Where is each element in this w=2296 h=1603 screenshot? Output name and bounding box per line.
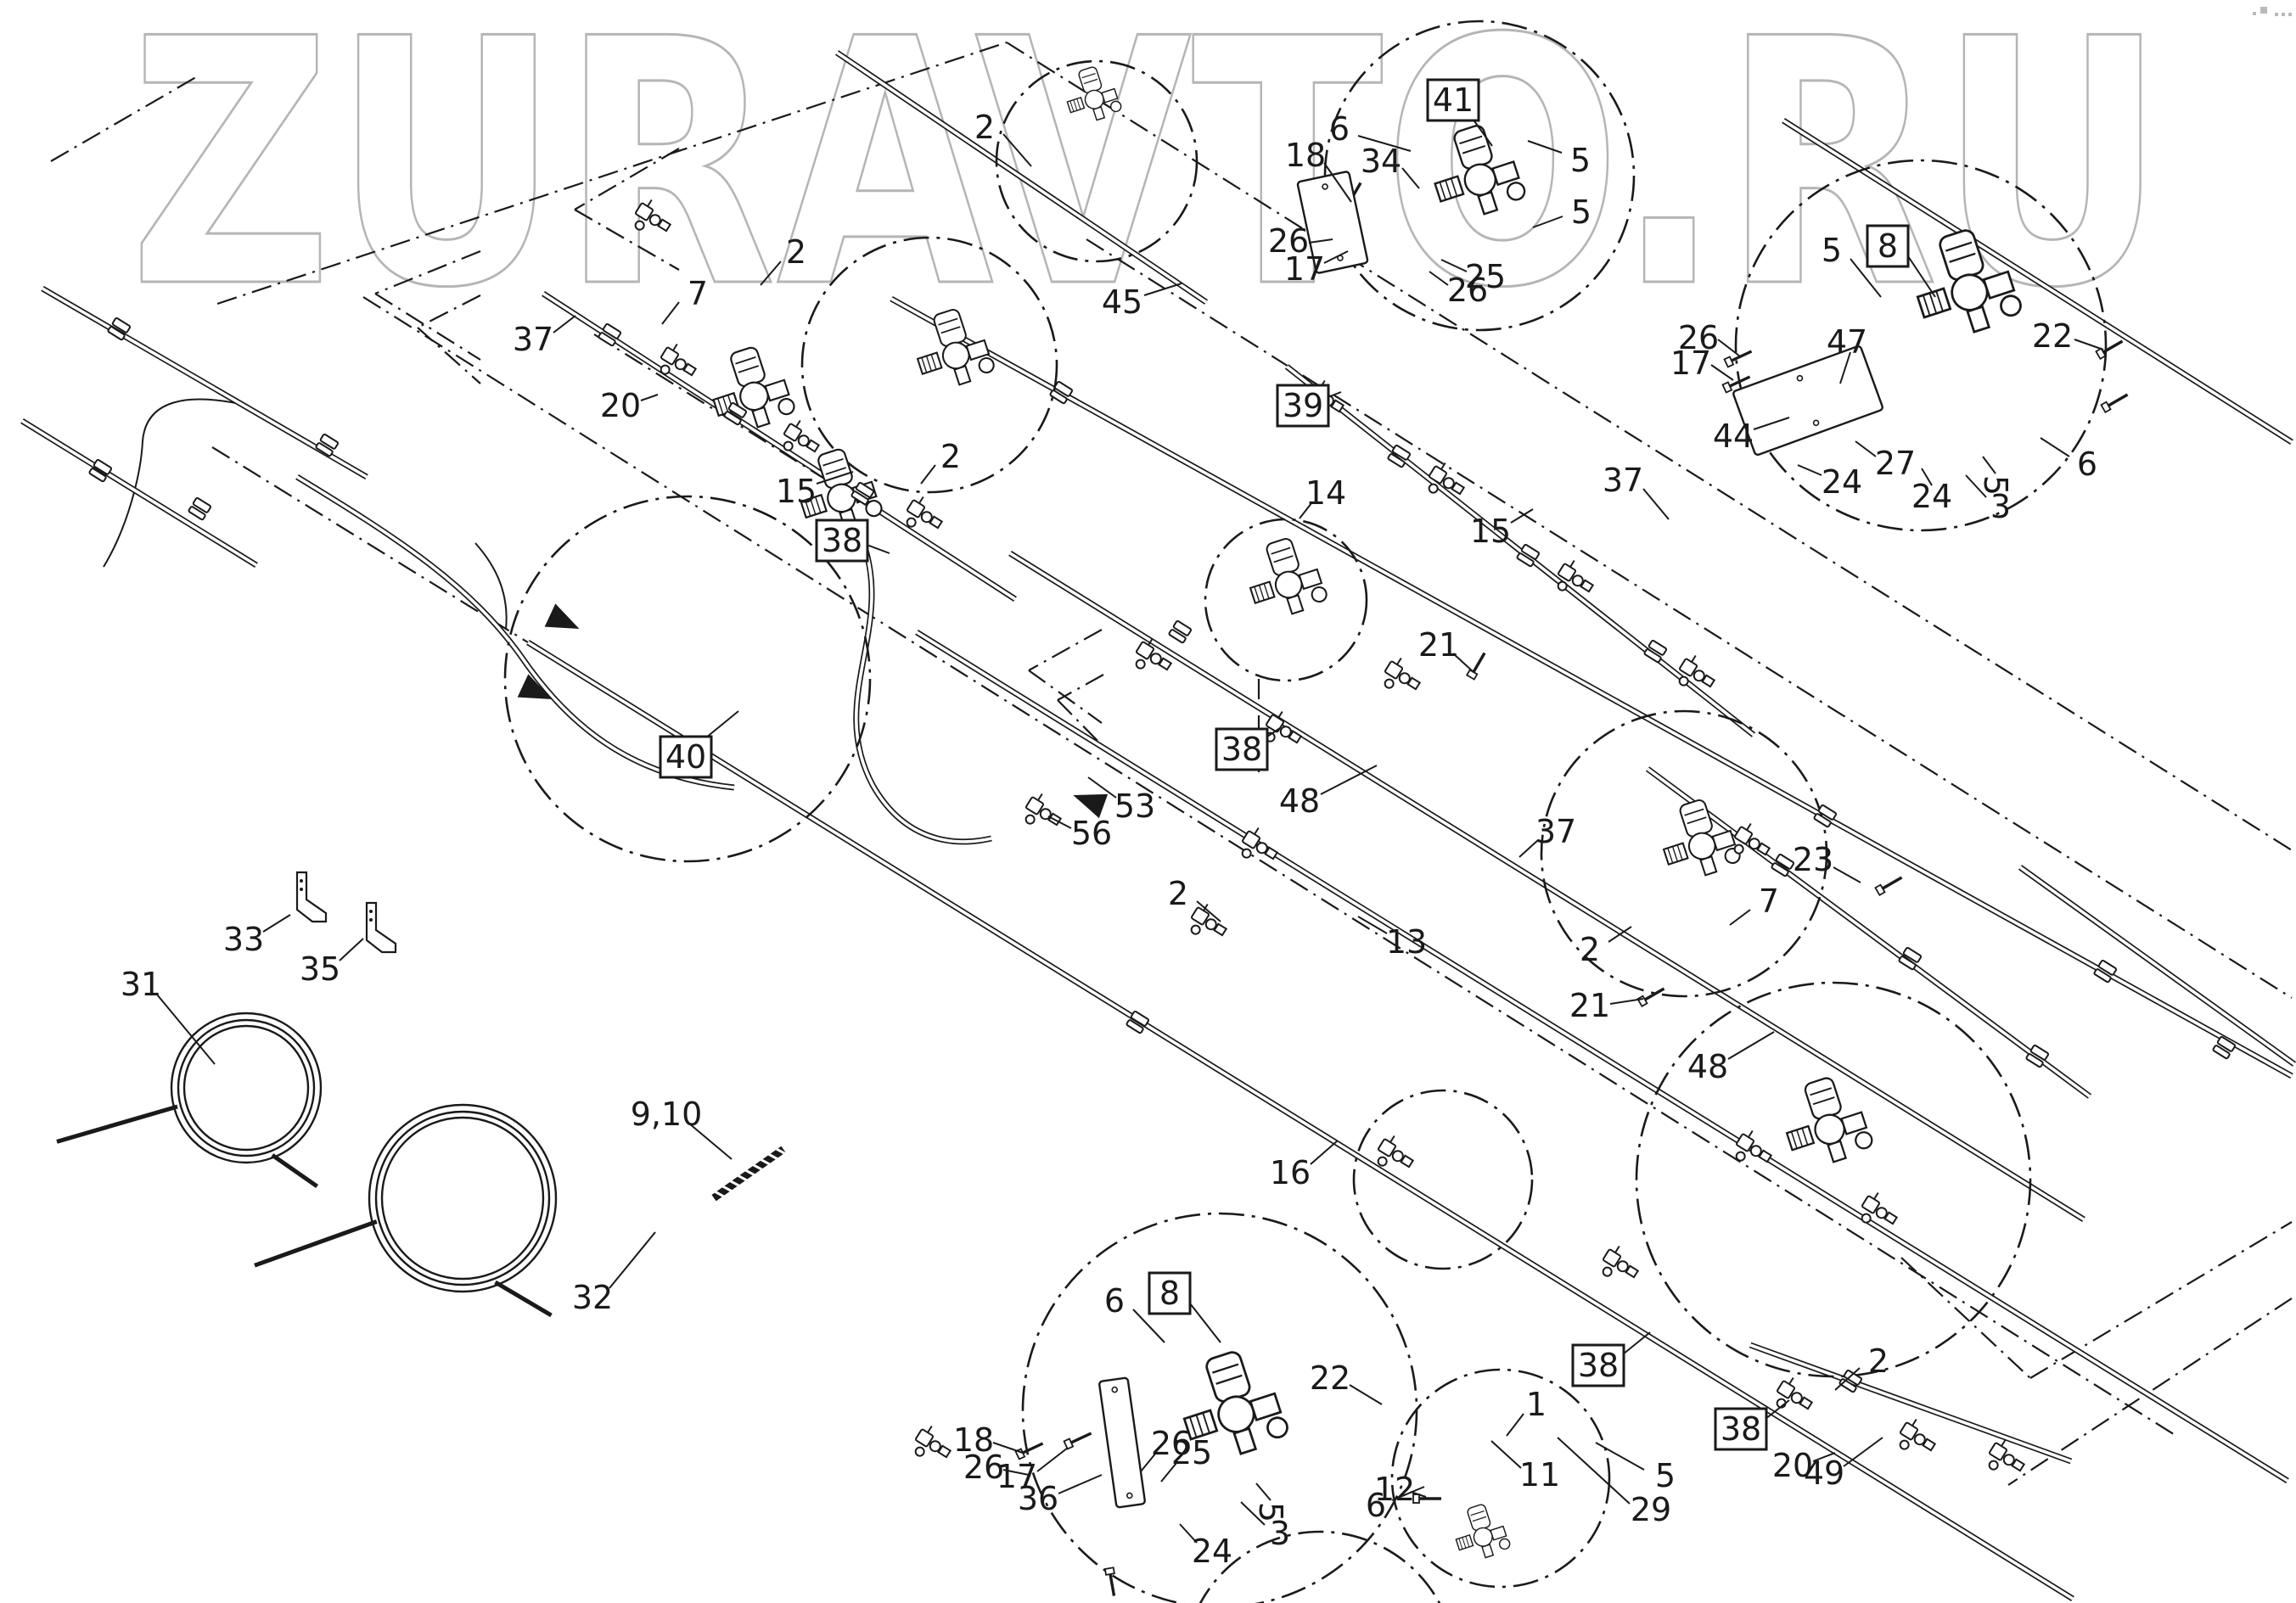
nozzle-tip-icon (1384, 678, 1395, 690)
part-label: 2 (1868, 1342, 1889, 1380)
valve-port-icon (1490, 1527, 1507, 1540)
part-label: 53 (1114, 787, 1155, 825)
part-label-boxed: 40 (660, 737, 711, 777)
leader-line (1511, 509, 1533, 523)
part-label: 2 (1168, 875, 1188, 912)
part-label: 48 (1279, 782, 1320, 820)
bolt-shaft-icon (1071, 1433, 1092, 1443)
nozzle-cluster (777, 417, 825, 462)
part-number: 13 (1386, 923, 1427, 961)
part-label: 2 (1580, 931, 1600, 968)
part-label: 5 (1252, 1502, 1289, 1522)
coil-ring-icon (171, 1013, 321, 1163)
part-label: 1 (1526, 1386, 1547, 1423)
part-label: 15 (776, 473, 817, 510)
section-dashdot-line (1901, 1258, 2030, 1378)
part-number: 18 (1285, 137, 1326, 174)
leader-line (1037, 1448, 1068, 1471)
holder-bracket (367, 903, 396, 952)
leader-line (921, 465, 935, 484)
leader-line (609, 1232, 655, 1288)
spiral-wrap (711, 1145, 787, 1202)
callout-circle (1354, 1090, 1532, 1269)
part-label: 17 (1284, 250, 1325, 288)
part-label-boxed: 39 (1277, 385, 1328, 426)
part-number: 47 (1827, 323, 1867, 361)
part-label: 45 (1102, 283, 1142, 321)
coil-ring-icon (376, 1112, 549, 1285)
valve-port-icon (1250, 582, 1274, 603)
part-label: 18 (1285, 137, 1326, 174)
leader-line (1190, 1303, 1221, 1342)
valve-assembly (1448, 1499, 1512, 1564)
valve-port-icon (954, 366, 970, 384)
valve-port-icon (1482, 1544, 1493, 1558)
part-number: 41 (1433, 81, 1474, 119)
part-number: 22 (1310, 1359, 1350, 1397)
corner-mark (2253, 12, 2256, 15)
bolt-head-icon (1875, 885, 1884, 895)
part-label-boxed: 38 (1715, 1409, 1766, 1449)
part-number: 6 (1329, 110, 1350, 148)
coil-tail-icon (272, 1155, 317, 1186)
corner-mark (2260, 7, 2267, 14)
nozzle-cluster (1019, 790, 1067, 836)
part-label: 24 (1911, 478, 1952, 515)
valve-port-icon (1664, 844, 1687, 865)
leader-line (1711, 365, 1733, 380)
part-label: 29 (1631, 1491, 1671, 1528)
nozzle-tip-icon (1024, 814, 1036, 826)
nozzle-tip-icon (1988, 1460, 2000, 1471)
part-number: 24 (1911, 478, 1952, 515)
valve-port-icon (1713, 831, 1735, 850)
part-number: 8 (1878, 227, 1898, 265)
coil-ring-icon (382, 1118, 543, 1279)
part-label: 11 (1519, 1456, 1560, 1494)
part-label-boxed: 38 (1573, 1345, 1624, 1386)
leader-line (1596, 1443, 1644, 1470)
part-label: 56 (1071, 815, 1112, 852)
part-number: 20 (600, 387, 641, 424)
pipe-clamp (1169, 620, 1192, 643)
part-number: 31 (121, 966, 161, 1003)
exploded-parts-diagram: ZURAVTO.RU641183452617525262452377201538… (0, 0, 2296, 1603)
nozzle-tip-icon (1135, 659, 1147, 670)
part-label-boxed: 38 (1216, 729, 1267, 770)
bolt-shaft-icon (2108, 395, 2128, 406)
part-label: 21 (1418, 626, 1459, 664)
part-number: 37 (513, 321, 553, 358)
part-number: 38 (1221, 731, 1262, 768)
leader-line (1844, 1438, 1883, 1466)
part-label: 37 (513, 321, 553, 358)
clamp-ring-icon (777, 397, 796, 417)
part-label: 5 (1571, 193, 1591, 231)
pipe-clamp (1839, 1370, 1862, 1393)
boom-pipe-core (2020, 867, 2294, 1064)
valve-motor-icon (1467, 1504, 1491, 1532)
part-number: 22 (2032, 317, 2073, 355)
part-number: 37 (1603, 462, 1643, 499)
part-number: 2 (1580, 931, 1600, 968)
nozzle-cluster (1894, 1415, 1941, 1461)
part-label: 27 (1875, 445, 1916, 482)
part-number: 56 (1071, 815, 1112, 852)
part-label: 37 (1603, 462, 1643, 499)
holder-bracket (297, 872, 326, 922)
part-label-boxed: 8 (1149, 1273, 1190, 1314)
valve-assembly (1239, 532, 1329, 624)
part-label: 23 (1793, 841, 1833, 878)
part-label-boxed: 8 (1867, 226, 1908, 266)
hose (856, 545, 991, 842)
part-number: 49 (1804, 1454, 1844, 1492)
part-number: 48 (1279, 782, 1320, 820)
part-label-boxed: 38 (817, 520, 867, 561)
part-label: 6 (1104, 1282, 1125, 1320)
valve-port-icon (1300, 569, 1322, 589)
leader-line (1833, 867, 1861, 883)
valve-motor-icon (817, 448, 854, 490)
part-label: 32 (572, 1279, 613, 1316)
hose-coil (57, 1013, 321, 1186)
part-label: 17 (1670, 345, 1711, 382)
valve-motor-icon (1266, 537, 1300, 577)
nozzle-cluster (1185, 900, 1232, 946)
part-number: 26 (1447, 272, 1488, 309)
section-dashdot-line (1058, 675, 1103, 700)
part-label: 5 (1570, 142, 1591, 179)
part-number: 6 (2077, 446, 2097, 483)
part-number: 33 (223, 921, 264, 958)
valve-port-icon (1700, 856, 1716, 875)
bolt-shaft-icon (1474, 653, 1485, 672)
leader-line (1643, 489, 1669, 519)
leader-line (1798, 465, 1822, 475)
part-label: 9,10 (631, 1096, 703, 1133)
part-number: 14 (1305, 474, 1346, 512)
valve-port-icon (1287, 595, 1303, 614)
part-number: 25 (1171, 1434, 1212, 1471)
leader-line (1321, 765, 1377, 794)
part-label: 7 (688, 275, 708, 312)
part-number: 38 (822, 522, 862, 559)
part-number: 37 (1535, 813, 1576, 850)
valve-port-icon (1842, 1113, 1867, 1135)
corner-mark (2275, 13, 2278, 16)
part-label: 31 (121, 966, 161, 1003)
part-number: 38 (1721, 1410, 1761, 1448)
bolt (1105, 1567, 1119, 1596)
leader-line (1350, 1385, 1382, 1404)
part-number: 35 (300, 950, 340, 988)
bolt (1467, 651, 1488, 680)
part-number: 24 (1192, 1533, 1232, 1570)
part-label: 22 (2032, 317, 2073, 355)
valve-port-icon (1787, 1126, 1814, 1150)
part-label: 21 (1569, 987, 1610, 1024)
corner-mark (2282, 13, 2285, 16)
part-label: 37 (1535, 813, 1576, 850)
part-number: 5 (1977, 475, 2014, 496)
leader-line (1311, 1141, 1338, 1164)
leader-line (1728, 1032, 1774, 1059)
part-number: 17 (1284, 250, 1325, 288)
leader-line (1558, 1438, 1630, 1504)
watermark-text: ZURAVTO.RU (129, 0, 2166, 362)
part-label: 47 (1827, 323, 1867, 361)
leader-line (1507, 1414, 1524, 1436)
bolt-shaft-icon (1883, 877, 1902, 888)
part-number: 44 (1713, 418, 1754, 455)
nozzle-tip-icon (1899, 1439, 1911, 1451)
leader-line (2041, 438, 2069, 457)
part-number: 38 (1578, 1347, 1619, 1384)
part-label: 14 (1305, 474, 1346, 512)
part-number: 16 (1270, 1154, 1311, 1191)
part-number: 11 (1519, 1456, 1560, 1494)
leader-line (641, 395, 658, 401)
valve-port-icon (753, 407, 770, 427)
flow-arrow-icon (545, 603, 585, 640)
leader-line (340, 939, 363, 961)
leader-line (1058, 1475, 1102, 1494)
part-number: 53 (1114, 787, 1155, 825)
part-number: 5 (1655, 1457, 1676, 1494)
part-label: 13 (1386, 923, 1427, 961)
part-number: 29 (1631, 1491, 1671, 1528)
nozzle-tip-icon (1602, 1266, 1614, 1278)
valve-motor-icon (1679, 799, 1714, 838)
part-number: 12 (1374, 1471, 1415, 1508)
part-number: 2 (1868, 1342, 1889, 1380)
part-label: 20 (600, 387, 641, 424)
diagram-stage: ZURAVTO.RU641183452617525262452377201538… (0, 0, 2296, 1603)
part-number: 8 (1159, 1275, 1180, 1312)
part-label: 33 (223, 921, 264, 958)
clamp-ring-icon (1265, 1415, 1289, 1440)
coil-ring-icon (369, 1105, 556, 1292)
part-label: 25 (1171, 1434, 1212, 1471)
coil-tail-icon (57, 1107, 177, 1141)
corner-mark (2288, 13, 2292, 16)
plate-shape-icon (1099, 1377, 1146, 1507)
nozzle-tip-icon (914, 1446, 926, 1458)
boom-pipe-core (22, 421, 256, 565)
valve-port-icon (766, 380, 789, 401)
bolt (1016, 1439, 1045, 1459)
pipe-clamp (316, 434, 339, 457)
clamp-ring-icon (1854, 1130, 1874, 1151)
valve-assembly (1653, 793, 1743, 885)
part-number: 5 (1252, 1502, 1289, 1522)
leader-line (263, 915, 290, 932)
bolt-shaft-icon (1645, 989, 1664, 1000)
valve-motor-icon (1804, 1076, 1843, 1120)
part-label: 15 (1470, 513, 1511, 550)
part-label: 5 (1822, 232, 1842, 269)
bolt (1875, 874, 1904, 895)
nozzle-cluster (909, 1422, 957, 1468)
part-number: 32 (572, 1279, 613, 1316)
part-number: 2 (1168, 875, 1188, 912)
part-label: 16 (1270, 1154, 1311, 1191)
nozzle-cluster (1730, 1127, 1777, 1173)
leader-line (1855, 441, 1876, 457)
part-label-boxed: 41 (1428, 80, 1479, 121)
leader-line (157, 995, 215, 1064)
part-label: 12 (1374, 1471, 1415, 1508)
pipe-clamp (188, 497, 211, 520)
valve-port-icon (1250, 1393, 1281, 1420)
hose-coil (255, 1105, 556, 1315)
part-label: 5 (1977, 475, 2014, 496)
part-label: 7 (1759, 883, 1779, 920)
part-number: 34 (1361, 143, 1401, 180)
bolt-head-icon (1637, 996, 1647, 1006)
callout-circle (1392, 1370, 1609, 1587)
part-label: 6 (1329, 110, 1350, 148)
valve-port-icon (1234, 1428, 1255, 1454)
part-number: 7 (1759, 883, 1779, 920)
part-number: 39 (1283, 387, 1323, 424)
mounting-plate (1099, 1377, 1146, 1507)
part-label: 48 (1687, 1048, 1728, 1085)
part-number: 5 (1571, 193, 1591, 231)
part-label: 6 (2077, 446, 2097, 483)
part-number: 2 (940, 438, 961, 475)
part-number: 40 (665, 738, 706, 776)
part-number: 17 (1670, 345, 1711, 382)
part-number: 5 (1822, 232, 1842, 269)
part-label: 26 (1447, 272, 1488, 309)
bolt-head-icon (1105, 1567, 1114, 1575)
bolt (1064, 1429, 1093, 1449)
part-number: 21 (1569, 987, 1610, 1024)
leader-line (1256, 1483, 1271, 1500)
valve-port-icon (1456, 1535, 1473, 1550)
bolt-head-icon (1064, 1438, 1074, 1449)
coil-tail-icon (255, 1222, 377, 1266)
part-number: 23 (1793, 841, 1833, 878)
part-number: 6 (1104, 1282, 1125, 1320)
bolt (1413, 1494, 1441, 1503)
coil-ring-icon (178, 1020, 314, 1156)
part-label: 2 (974, 109, 995, 146)
part-number: 48 (1687, 1048, 1728, 1085)
clamp-ring-icon (1498, 1538, 1511, 1550)
leader-line (1730, 910, 1750, 925)
bolt (2101, 391, 2130, 412)
part-number: 45 (1102, 283, 1142, 321)
part-number: 36 (1018, 1480, 1058, 1517)
part-number: 27 (1875, 445, 1916, 482)
coil-tail-icon (496, 1282, 552, 1315)
valve-assembly (1774, 1070, 1874, 1173)
leader-line (1983, 457, 1996, 474)
part-label: 2 (940, 438, 961, 475)
valve-port-icon (1828, 1141, 1846, 1163)
section-dashdot-line (1029, 630, 1102, 670)
valve-motor-icon (1204, 1350, 1252, 1404)
flow-arrow-icon (1069, 783, 1108, 818)
bolt-head-icon (2101, 402, 2110, 412)
part-number: 2 (786, 233, 806, 271)
part-number: 7 (688, 275, 708, 312)
bolt-head-icon (1723, 382, 1732, 392)
part-label: 24 (1192, 1533, 1232, 1570)
clamp-ring-icon (1310, 586, 1328, 603)
leader-line (1491, 1441, 1521, 1468)
part-label: 34 (1361, 143, 1401, 180)
part-label: 5 (1655, 1457, 1676, 1494)
part-label: 2 (786, 233, 806, 271)
part-number: 9,10 (631, 1096, 703, 1133)
part-label: 22 (1310, 1359, 1350, 1397)
part-label: 24 (1822, 463, 1862, 501)
part-number: 15 (776, 473, 817, 510)
part-number: 2 (974, 109, 995, 146)
part-label: 44 (1713, 418, 1754, 455)
part-number: 15 (1470, 513, 1511, 550)
part-label: 49 (1804, 1454, 1844, 1492)
nozzle-cluster (1597, 1242, 1644, 1288)
part-label: 35 (300, 950, 340, 988)
part-number: 1 (1526, 1386, 1547, 1423)
section-dashdot-line (212, 447, 528, 642)
section-dashdot-line (2030, 1222, 2292, 1378)
part-number: 5 (1570, 142, 1591, 179)
part-number: 21 (1418, 626, 1459, 664)
part-number: 24 (1822, 463, 1862, 501)
pipe-clamp (1644, 640, 1667, 663)
callout-circle (1636, 983, 2030, 1376)
coil-ring-icon (184, 1026, 308, 1150)
nozzle-tip-icon (1190, 924, 1202, 936)
hose-core (856, 545, 991, 842)
part-label: 36 (1018, 1480, 1058, 1517)
